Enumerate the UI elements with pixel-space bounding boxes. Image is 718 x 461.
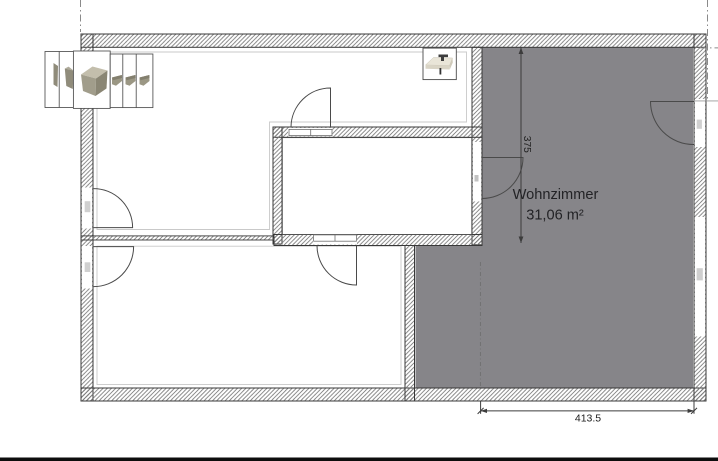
svg-text:375: 375 (521, 136, 532, 153)
svg-text:31,06 m²: 31,06 m² (526, 208, 584, 224)
svg-text:Wohnzimmer: Wohnzimmer (513, 187, 599, 203)
svg-text:413.5: 413.5 (575, 413, 601, 425)
